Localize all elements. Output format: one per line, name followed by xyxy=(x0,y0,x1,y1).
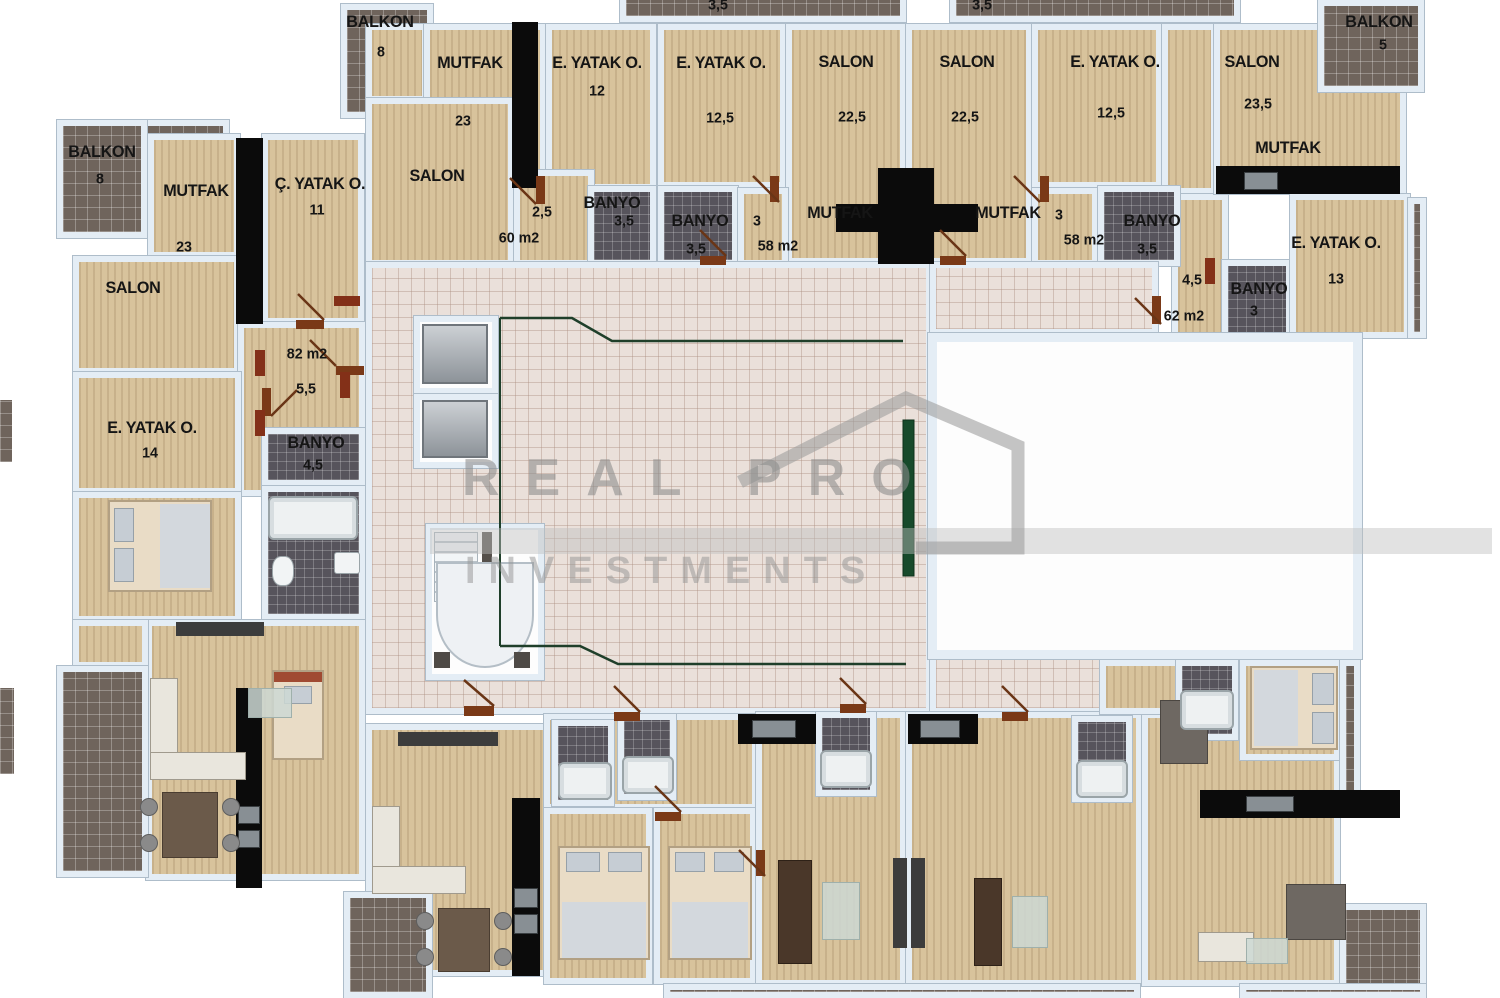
floor-plan: BALKON 8 MUTFAK 23 Ç. YATAK O. 11 SALON … xyxy=(0,0,1500,998)
watermark-line2: INVESTMENTS xyxy=(465,550,878,593)
watermark-line1: REAL PRO xyxy=(462,448,938,508)
